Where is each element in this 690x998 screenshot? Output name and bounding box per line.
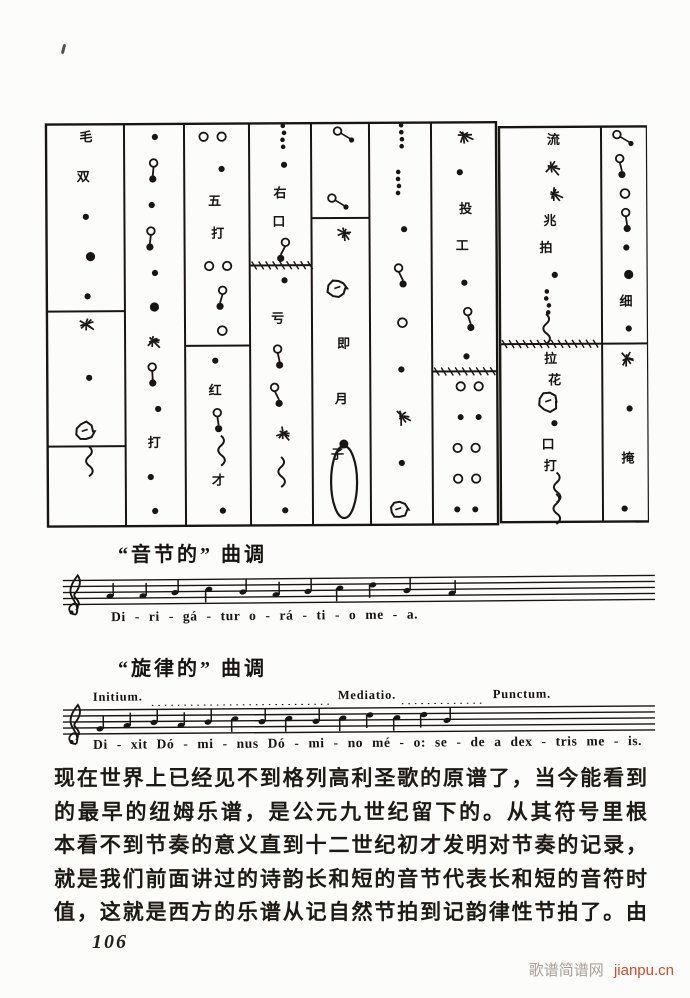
neume-notation-figure-svg: 毛双打五打红才右口亏即月子投工流兆拍拉花口打细掩 [44,119,649,529]
caption-melodic-melody: “旋律的” 曲调 [118,652,267,681]
svg-text:拉: 拉 [544,351,557,366]
svg-text:打: 打 [544,458,557,473]
svg-text:红: 红 [209,383,222,398]
svg-text:才: 才 [212,473,225,488]
svg-text:亏: 亏 [271,311,284,326]
page-number: 106 [92,931,128,954]
paragraph-line: 的最早的纽姆乐谱，是公元九世纪留下的。从其符号里根 [54,796,648,830]
body-paragraph: 现在世界上已经见不到格列高利圣歌的原谱了，当今能看到的最早的纽姆乐谱，是公元九世… [54,762,648,930]
paragraph-line: 现在世界上已经见不到格列高利圣歌的原谱了，当今能看到 [54,762,648,796]
paragraph-line: 就是我们前面讲过的诗韵长和短的音节代表长和短的音符时 [54,863,648,897]
watermark-site-url: jianpu.cn [614,962,674,979]
staff-melodic: Initium. Mediatio. Punctum. Di - xit Dó … [57,686,663,762]
svg-text:毛: 毛 [79,129,92,144]
svg-text:花: 花 [548,372,561,387]
lyrics-syllabic: Di - ri - gá - tur o - rá - ti - o me - … [111,606,418,625]
stray-ink-mark [61,44,66,54]
svg-text:工: 工 [456,238,469,253]
staff-syllabic: Di - ri - gá - tur o - rá - ti - o me - … [57,567,664,636]
svg-text:打: 打 [211,226,224,241]
neume-notation-figure: 毛双打五打红才右口亏即月子投工流兆拍拉花口打细掩 [44,119,649,529]
caption-syllabic-melody: “音节的” 曲调 [118,538,267,567]
svg-text:拍: 拍 [539,240,552,255]
svg-text:流: 流 [547,132,560,147]
watermark: 歌谱简谱网 jianpu.cn [529,959,674,980]
svg-text:兆: 兆 [543,213,556,228]
svg-text:口: 口 [542,437,555,452]
svg-text:月: 月 [334,391,348,406]
svg-text:即: 即 [337,336,350,351]
svg-text:掩: 掩 [621,450,635,465]
svg-text:细: 细 [619,294,632,309]
svg-text:双: 双 [77,169,90,184]
svg-text:五: 五 [208,193,221,208]
svg-text:打: 打 [148,435,161,450]
lyrics-melodic: Di - xit Dó - mi - nus Dó - mi - no mé -… [93,733,642,753]
watermark-site-name: 歌谱简谱网 [529,962,604,979]
svg-text:口: 口 [272,214,285,229]
svg-text:右: 右 [272,185,286,200]
paragraph-line: 值，这就是西方的乐谱从记自然节拍到记韵律性节拍了。由 [54,896,648,930]
paragraph-line: 本看不到节奏的意义直到十二世纪初才发明对节奏的记录， [54,829,648,863]
svg-text:投: 投 [459,201,472,216]
